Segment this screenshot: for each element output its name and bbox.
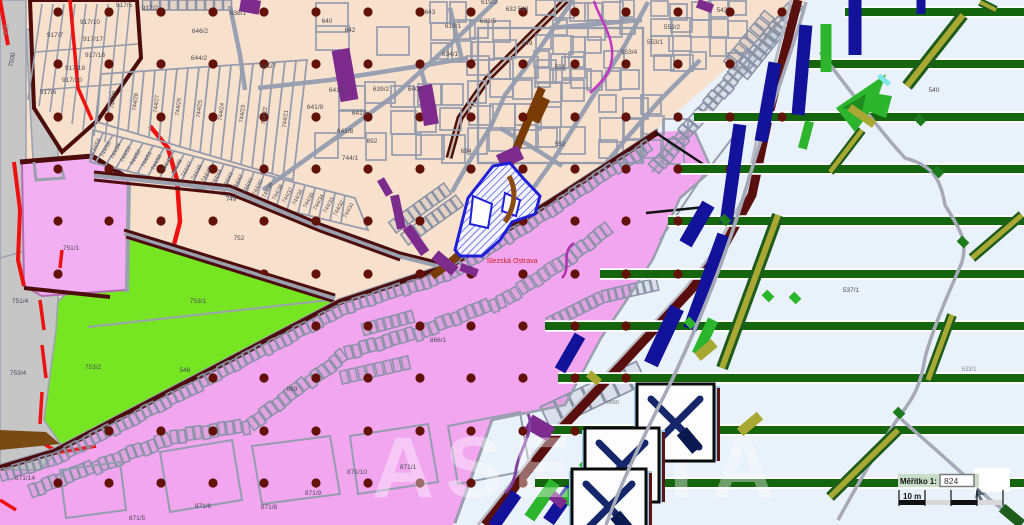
svg-text:917/18: 917/18 bbox=[85, 52, 105, 59]
svg-text:824: 824 bbox=[944, 476, 958, 486]
svg-text:641/6: 641/6 bbox=[352, 110, 369, 117]
svg-text:533/1: 533/1 bbox=[961, 367, 977, 373]
svg-text:869: 869 bbox=[287, 386, 298, 393]
svg-text:871/9: 871/9 bbox=[305, 490, 322, 497]
svg-text:641/9: 641/9 bbox=[307, 104, 324, 111]
svg-text:548: 548 bbox=[518, 6, 529, 13]
svg-text:553/4: 553/4 bbox=[621, 49, 638, 56]
svg-text:642: 642 bbox=[345, 27, 356, 34]
svg-text:641/8: 641/8 bbox=[337, 128, 354, 135]
svg-text:641/5: 641/5 bbox=[329, 87, 346, 94]
svg-text:540: 540 bbox=[929, 87, 940, 94]
svg-text:871/5: 871/5 bbox=[129, 515, 146, 522]
svg-text:6660: 6660 bbox=[607, 400, 619, 406]
svg-text:871/10: 871/10 bbox=[347, 469, 367, 476]
svg-text:632: 632 bbox=[506, 6, 517, 13]
svg-text:753/2: 753/2 bbox=[85, 364, 102, 371]
svg-text:552: 552 bbox=[555, 141, 566, 148]
svg-text:871/6: 871/6 bbox=[195, 503, 212, 510]
svg-text:643: 643 bbox=[425, 9, 436, 16]
svg-text:551: 551 bbox=[555, 64, 566, 71]
svg-text:917/6: 917/6 bbox=[40, 89, 57, 96]
svg-text:638/1: 638/1 bbox=[230, 10, 247, 17]
svg-text:917/20: 917/20 bbox=[62, 77, 82, 84]
svg-text:Měřítko 1:: Měřítko 1: bbox=[900, 477, 937, 486]
svg-text:549: 549 bbox=[522, 40, 533, 47]
svg-text:546: 546 bbox=[180, 367, 191, 374]
svg-text:749: 749 bbox=[226, 196, 237, 203]
svg-text:619/2: 619/2 bbox=[481, 0, 498, 6]
svg-text:10 m: 10 m bbox=[903, 492, 921, 501]
svg-text:753/1: 753/1 bbox=[190, 298, 207, 305]
svg-text:917/19: 917/19 bbox=[65, 65, 85, 72]
svg-text:751/1: 751/1 bbox=[63, 245, 80, 252]
svg-text:917/17: 917/17 bbox=[83, 36, 103, 43]
svg-text:694: 694 bbox=[461, 148, 472, 155]
svg-text:619/1: 619/1 bbox=[445, 23, 462, 30]
svg-text:753/4: 753/4 bbox=[10, 370, 27, 377]
svg-text:871/8: 871/8 bbox=[261, 504, 278, 511]
svg-text:866/1: 866/1 bbox=[430, 337, 447, 344]
svg-text:744/1: 744/1 bbox=[342, 155, 359, 162]
svg-text:917/5: 917/5 bbox=[116, 2, 133, 9]
svg-text:917/10: 917/10 bbox=[80, 19, 100, 26]
svg-text:751/4: 751/4 bbox=[12, 298, 29, 305]
svg-text:553/1: 553/1 bbox=[647, 39, 664, 46]
svg-text:639/2: 639/2 bbox=[373, 86, 390, 93]
svg-text:917/2: 917/2 bbox=[142, 5, 159, 12]
svg-text:553/2: 553/2 bbox=[664, 24, 681, 31]
svg-text:917/7: 917/7 bbox=[47, 32, 64, 39]
svg-text:871/14: 871/14 bbox=[15, 475, 35, 482]
svg-text:640/2: 640/2 bbox=[408, 86, 425, 93]
svg-text:752: 752 bbox=[234, 235, 245, 242]
svg-text:871/1: 871/1 bbox=[400, 464, 417, 471]
svg-text:Slezská Ostrava: Slezská Ostrava bbox=[487, 258, 538, 265]
svg-text:692: 692 bbox=[367, 138, 378, 145]
svg-text:644/2: 644/2 bbox=[191, 55, 208, 62]
svg-text:543: 543 bbox=[717, 7, 728, 14]
svg-text:641/7: 641/7 bbox=[260, 63, 277, 70]
svg-text:634/1: 634/1 bbox=[442, 51, 459, 58]
svg-text:537/1: 537/1 bbox=[843, 287, 860, 294]
svg-text:646/2: 646/2 bbox=[192, 28, 209, 35]
svg-text:633/5: 633/5 bbox=[480, 18, 497, 25]
svg-text:640: 640 bbox=[322, 18, 333, 25]
